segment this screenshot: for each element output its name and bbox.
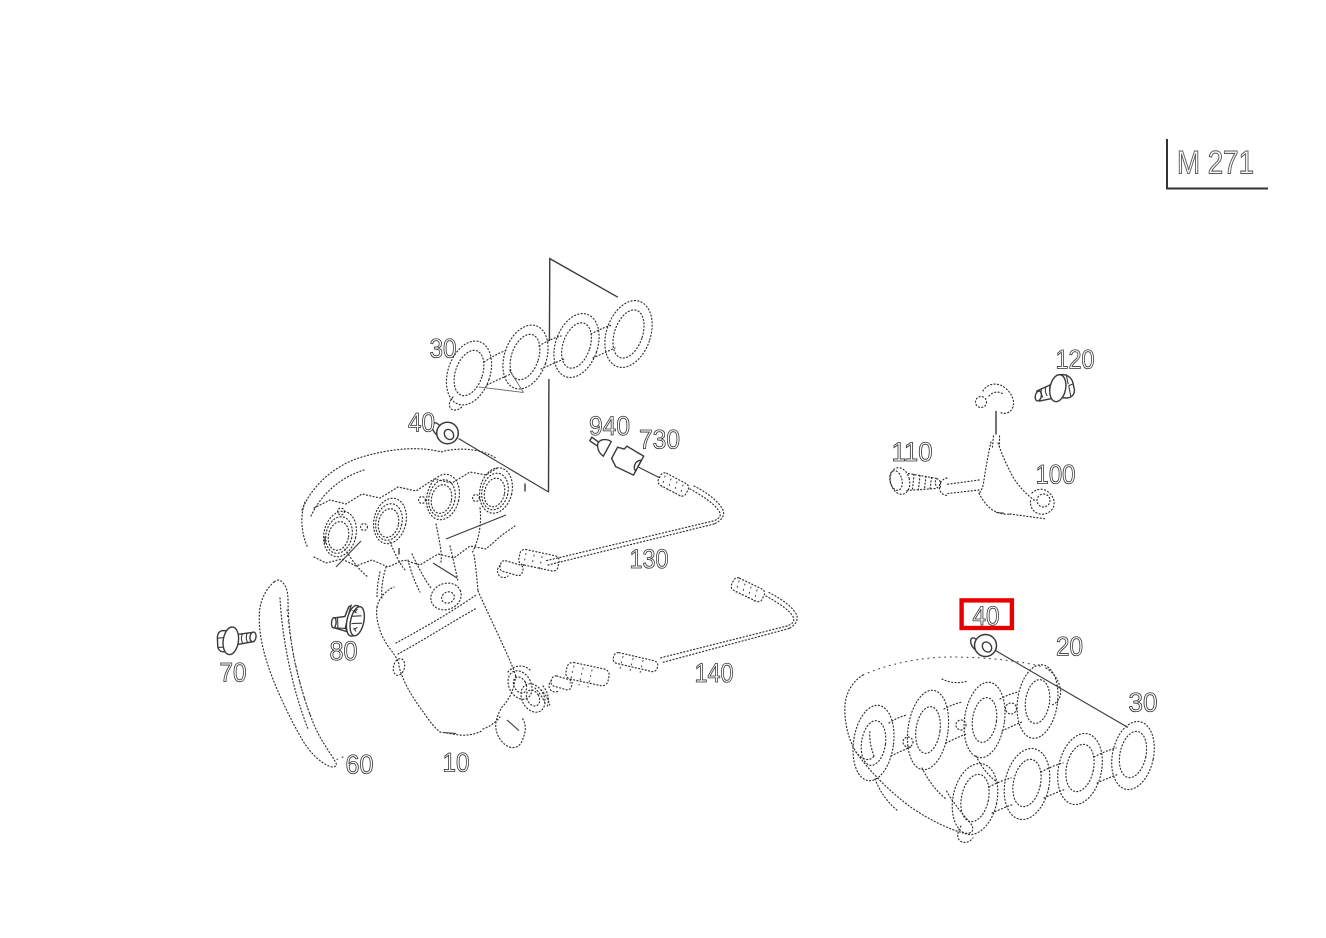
svg-text:40: 40	[408, 407, 435, 437]
svg-text:940: 940	[589, 411, 630, 441]
svg-text:110: 110	[892, 437, 933, 467]
svg-text:60: 60	[346, 749, 374, 779]
svg-text:10: 10	[443, 747, 470, 777]
svg-text:40: 40	[973, 601, 1000, 631]
svg-text:M 271: M 271	[1177, 145, 1254, 181]
svg-text:70: 70	[220, 657, 247, 687]
svg-text:80: 80	[330, 636, 358, 666]
svg-text:100: 100	[1036, 459, 1076, 489]
svg-text:130: 130	[630, 544, 669, 574]
svg-text:30: 30	[1129, 688, 1158, 718]
svg-text:20: 20	[1056, 631, 1083, 661]
svg-text:30: 30	[430, 333, 457, 363]
svg-text:730: 730	[639, 424, 680, 454]
svg-text:120: 120	[1056, 344, 1095, 374]
svg-text:140: 140	[695, 658, 734, 688]
